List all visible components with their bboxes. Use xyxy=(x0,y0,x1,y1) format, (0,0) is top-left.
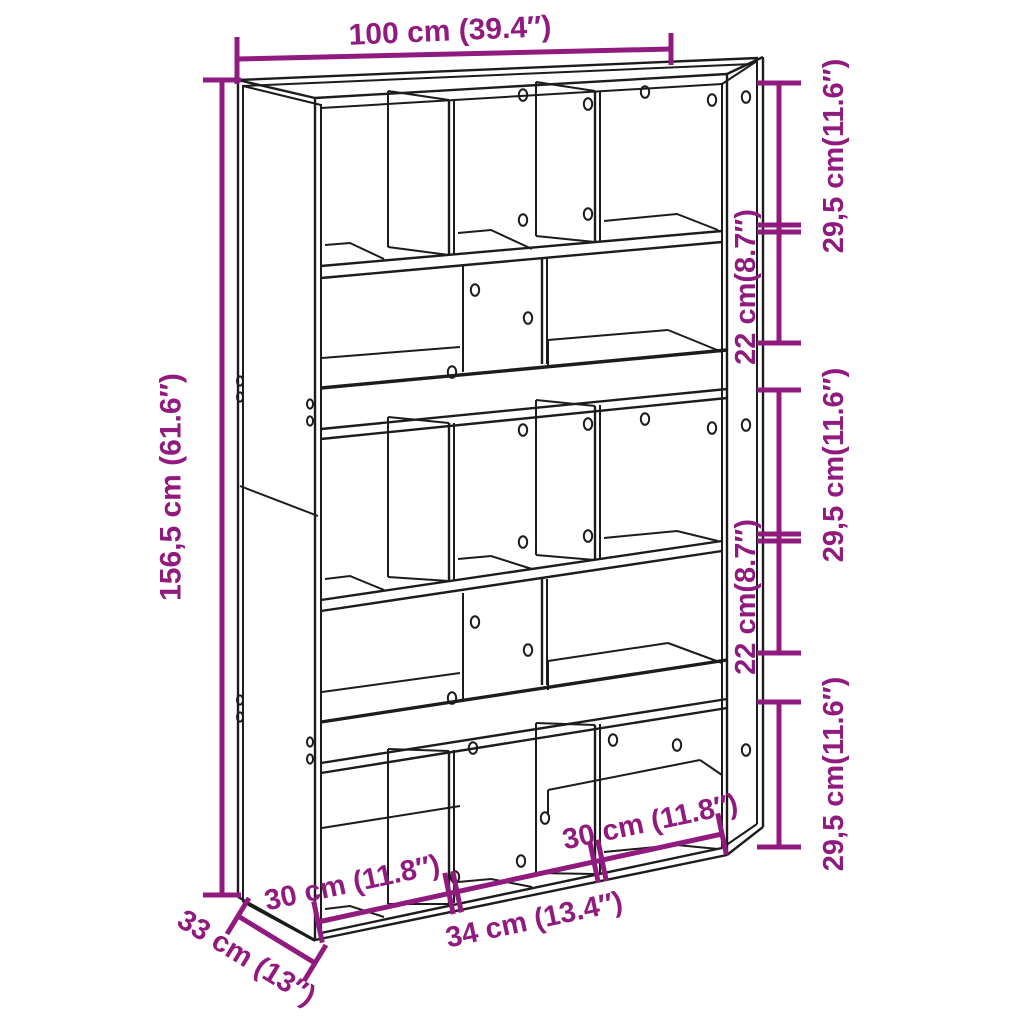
height-label: 156,5 cm (61.6″) xyxy=(155,373,188,601)
height-dimension: 156,5 cm (61.6″) xyxy=(155,80,242,895)
right-dim-label-5: 29,5 cm(11.6″) xyxy=(818,677,850,871)
dimension-diagram: 100 cm (39.4″) 156,5 cm (61.6″) 29,5 cm(… xyxy=(0,0,1024,1024)
right-dim-label-2: 22 cm(8.7″) xyxy=(730,209,762,365)
width-dimension: 100 cm (39.4″) xyxy=(237,10,671,84)
right-dimension-chain: 29,5 cm(11.6″) 22 cm(8.7″) 29,5 cm(11.6″… xyxy=(730,59,850,871)
right-dim-label-3: 29,5 cm(11.6″) xyxy=(818,368,850,562)
bottom-dim-label-3: 30 cm (11.8″) xyxy=(560,788,741,856)
bookcase-diagram-canvas: 100 cm (39.4″) 156,5 cm (61.6″) 29,5 cm(… xyxy=(0,0,1024,1024)
depth-dimension: 33 cm (13″) xyxy=(172,898,326,1012)
cubby-dividers xyxy=(388,82,600,904)
bottom-dim-label-2: 34 cm (13.4″) xyxy=(443,886,626,955)
right-dim-label-4: 22 cm(8.7″) xyxy=(730,519,762,675)
front-rail-2 xyxy=(321,660,727,722)
side-panel-seam xyxy=(240,486,318,516)
front-rail-1 xyxy=(321,350,727,388)
right-dim-label-1: 29,5 cm(11.6″) xyxy=(818,59,850,253)
width-label: 100 cm (39.4″) xyxy=(348,10,552,52)
